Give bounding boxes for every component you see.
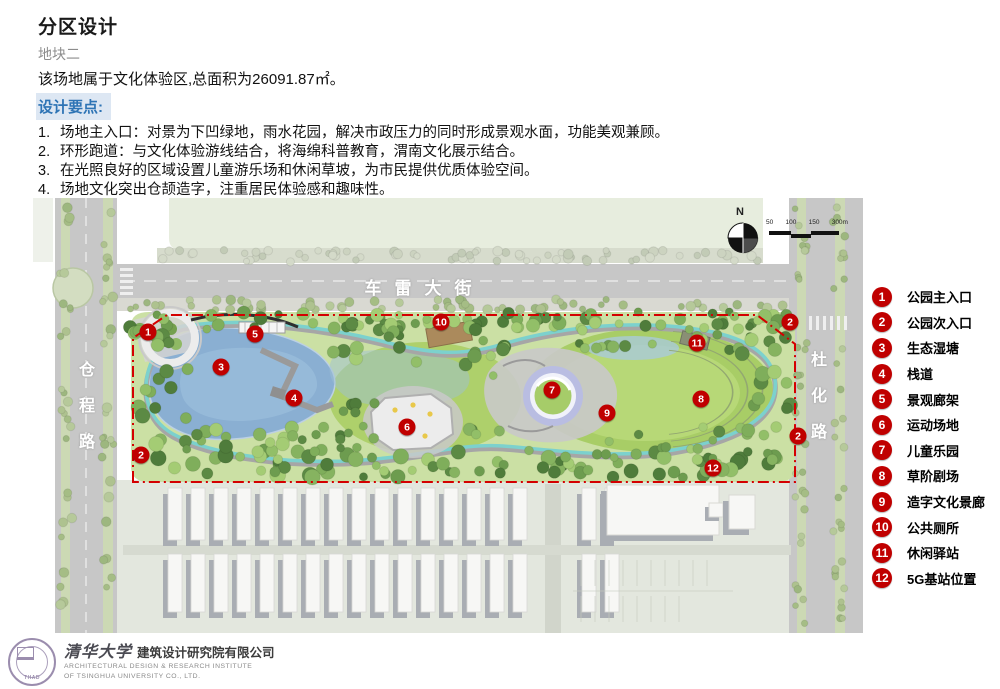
map-marker-12: 12: [705, 460, 722, 477]
logo-cn-company: 建筑设计研究院有限公司: [137, 647, 275, 661]
legend-label: 栈道: [907, 364, 933, 383]
design-point: 2.环形跑道：与文化体验游线结合，将海绵科普教育，渭南文化展示结合。: [38, 143, 669, 162]
field-block: [169, 198, 763, 250]
logo-cn-name: 清华大学: [64, 644, 132, 662]
legend-label: 运动场地: [907, 415, 959, 434]
map-marker-5: 5: [247, 326, 264, 343]
legend: 1公园主入口2公园次入口3生态湿塘4栈道5景观廊架6运动场地7儿童乐园8草阶剧场…: [872, 284, 985, 591]
footer-logo: THAD 清华大学 建筑设计研究院有限公司 ARCHITECTURAL DESI…: [8, 638, 275, 686]
scale-tick-labels: 50100150300m: [766, 219, 848, 226]
design-point: 1.场地主入口：对景为下凹绿地，雨水花园，解决市政压力的同时形成景观水面，功能美…: [38, 124, 669, 143]
legend-number-badge: 4: [872, 364, 892, 384]
legend-label: 公共厕所: [907, 518, 959, 537]
legend-item: 125G基站位置: [872, 566, 985, 592]
intro-text: 该场地属于文化体验区,总面积为26091.87㎡。: [38, 68, 345, 89]
legend-item: 5景观廊架: [872, 386, 985, 412]
legend-label: 生态湿塘: [907, 338, 959, 357]
map-marker-10: 10: [433, 314, 450, 331]
street-label-chelei: 车雷大街: [318, 274, 518, 299]
map-marker-2: 2: [782, 314, 799, 331]
map-marker-2: 2: [790, 428, 807, 445]
legend-number-badge: 11: [872, 543, 892, 563]
logo-en-line2: OF TSINGHUA UNIVERSITY CO., LTD.: [64, 673, 275, 680]
logo-en-line1: ARCHITECTURAL DESIGN & RESEARCH INSTITUT…: [64, 663, 275, 670]
legend-label: 公园次入口: [907, 313, 972, 332]
north-label: N: [736, 206, 744, 218]
legend-item: 9造字文化景廊: [872, 489, 985, 515]
design-point: 3.在光照良好的区域设置儿童游乐场和休闲草坡，为市民提供优质体验空间。: [38, 162, 669, 181]
street-label-cangcheng: 仓程路: [79, 356, 95, 452]
legend-item: 4栈道: [872, 361, 985, 387]
design-points-heading: 设计要点:: [36, 93, 111, 120]
legend-item: 8草阶剧场: [872, 463, 985, 489]
legend-number-badge: 6: [872, 415, 892, 435]
legend-number-badge: 7: [872, 440, 892, 460]
legend-item: 10公共厕所: [872, 514, 985, 540]
legend-label: 儿童乐园: [907, 441, 959, 460]
legend-label: 5G基站位置: [907, 569, 976, 588]
legend-number-badge: 10: [872, 517, 892, 537]
legend-label: 景观廊架: [907, 390, 959, 409]
street-label-duhua: 杜化路: [811, 346, 827, 442]
legend-item: 7儿童乐园: [872, 438, 985, 464]
map-marker-4: 4: [286, 390, 303, 407]
legend-label: 休闲驿站: [907, 543, 959, 562]
map-marker-7: 7: [544, 382, 561, 399]
legend-number-badge: 9: [872, 492, 892, 512]
legend-item: 3生态湿塘: [872, 335, 985, 361]
legend-number-badge: 5: [872, 389, 892, 409]
map-marker-11: 11: [689, 335, 706, 352]
map-marker-8: 8: [693, 391, 710, 408]
legend-number-badge: 2: [872, 312, 892, 332]
map-marker-9: 9: [599, 405, 616, 422]
map-marker-1: 1: [140, 324, 157, 341]
map-marker-6: 6: [399, 419, 416, 436]
page-subtitle: 地块二: [38, 44, 80, 64]
map-marker-2: 2: [133, 447, 150, 464]
legend-item: 2公园次入口: [872, 310, 985, 336]
legend-item: 11休闲驿站: [872, 540, 985, 566]
thad-seal-icon: THAD: [8, 638, 56, 686]
legend-number-badge: 3: [872, 338, 892, 358]
page-title: 分区设计: [38, 12, 118, 39]
map-marker-3: 3: [213, 359, 230, 376]
north-arrow-icon: [728, 223, 758, 253]
legend-number-badge: 1: [872, 287, 892, 307]
legend-label: 造字文化景廊: [907, 492, 985, 511]
design-points-list: 1.场地主入口：对景为下凹绿地，雨水花园，解决市政压力的同时形成景观水面，功能美…: [38, 124, 669, 200]
site-plan-map: N 50100150300m 车雷大街 仓程路 杜化路 151034798116…: [33, 198, 863, 633]
legend-label: 公园主入口: [907, 287, 972, 306]
legend-item: 6运动场地: [872, 412, 985, 438]
legend-number-badge: 12: [872, 568, 892, 588]
legend-item: 1公园主入口: [872, 284, 985, 310]
site-plan-drawing: [33, 198, 863, 633]
legend-number-badge: 8: [872, 466, 892, 486]
legend-label: 草阶剧场: [907, 466, 959, 485]
